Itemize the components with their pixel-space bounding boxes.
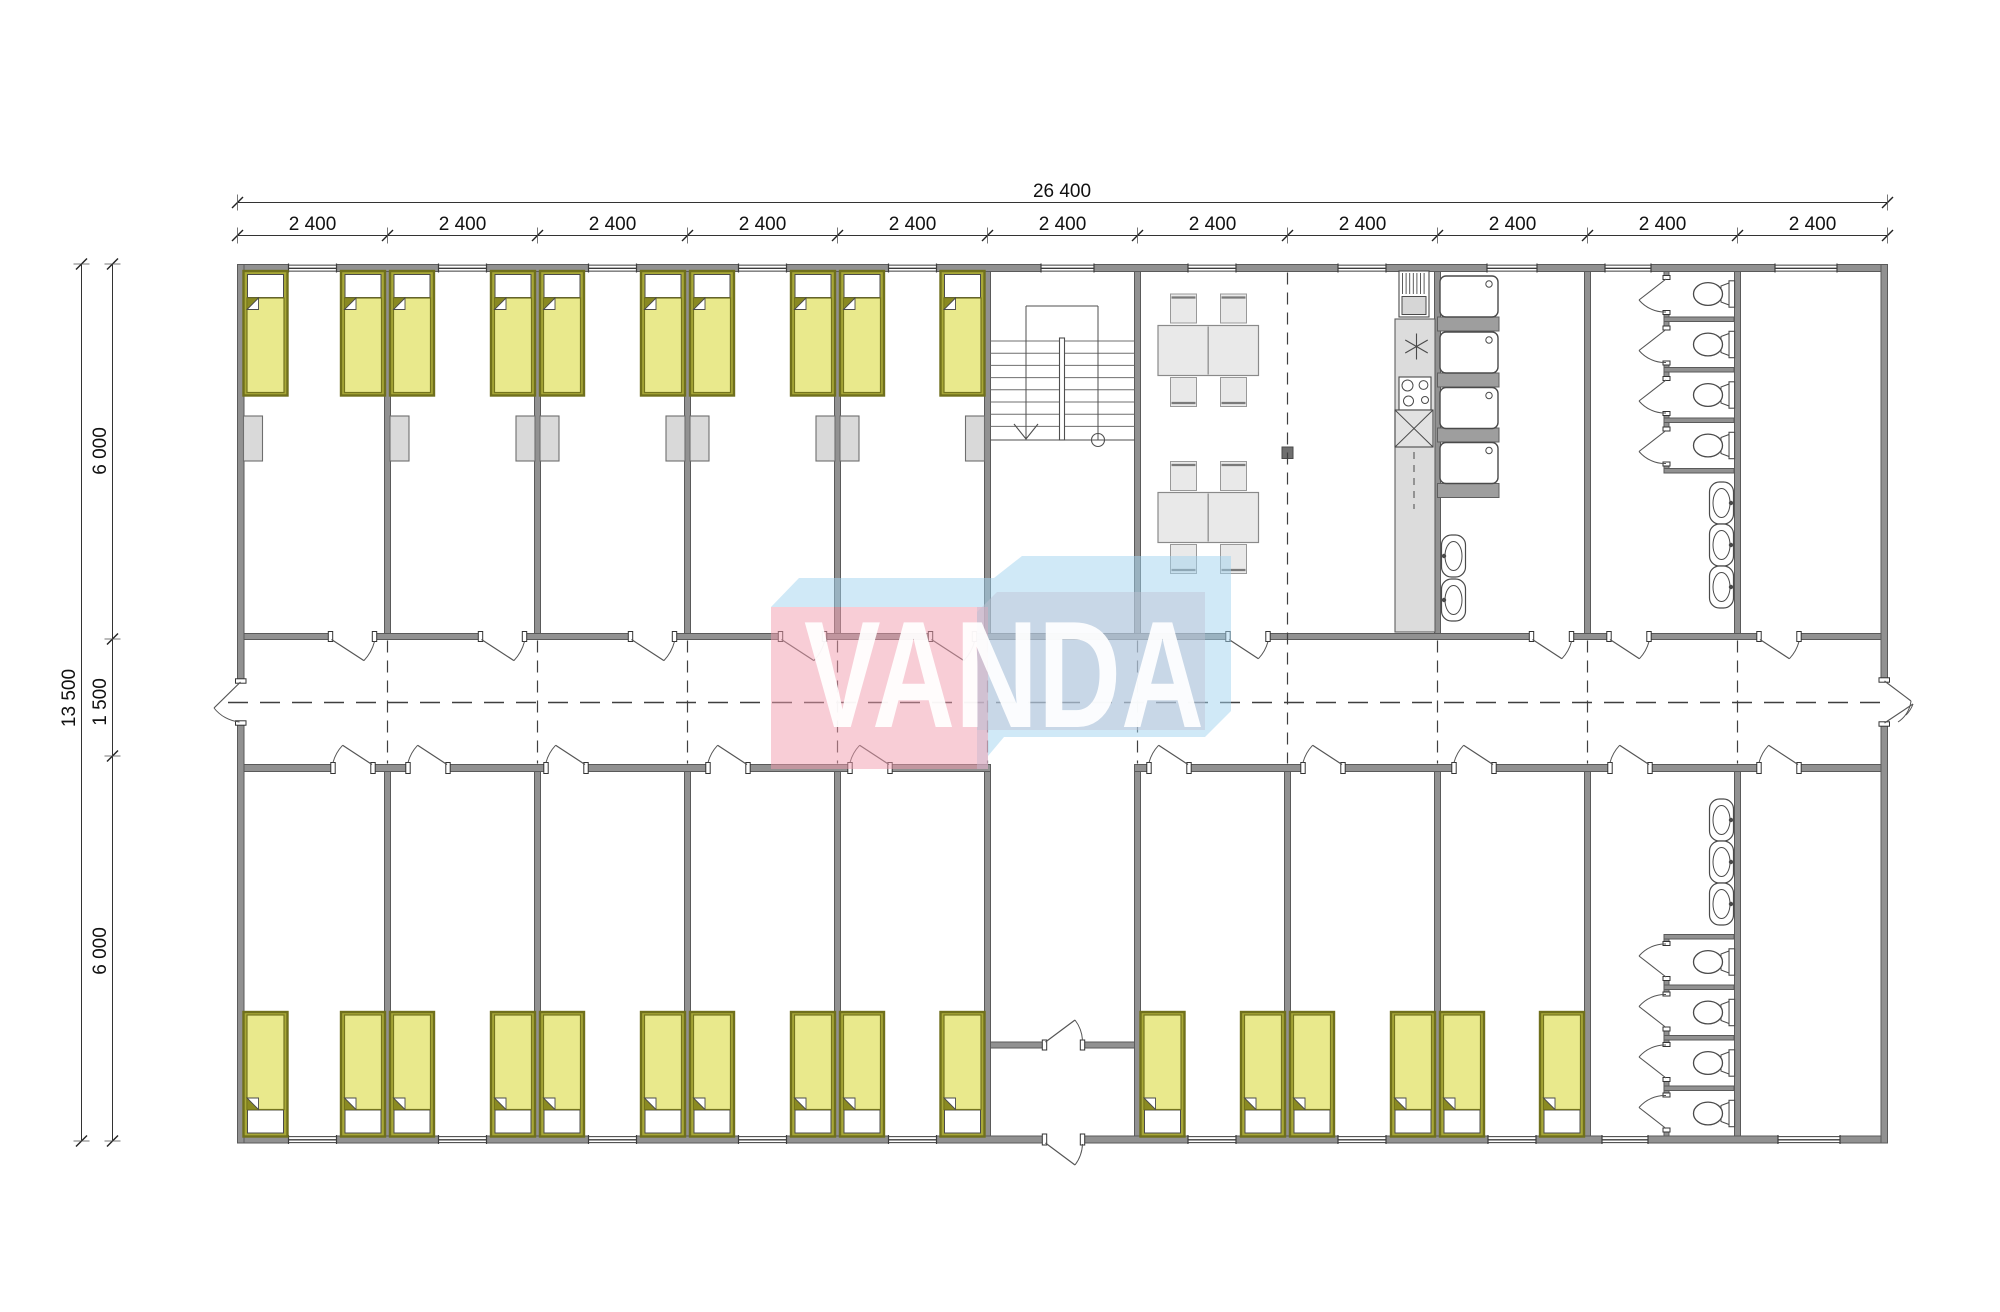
svg-text:2 400: 2 400 (1489, 214, 1537, 235)
svg-text:2 400: 2 400 (289, 214, 337, 235)
svg-text:2 400: 2 400 (1189, 214, 1237, 235)
svg-text:2 400: 2 400 (889, 214, 937, 235)
svg-text:2 400: 2 400 (439, 214, 487, 235)
svg-text:2 400: 2 400 (1639, 214, 1687, 235)
svg-text:2 400: 2 400 (739, 214, 787, 235)
svg-text:2 400: 2 400 (1339, 214, 1387, 235)
svg-text:1 500: 1 500 (90, 678, 111, 726)
svg-text:6 000: 6 000 (90, 427, 111, 475)
svg-text:13 500: 13 500 (59, 669, 80, 727)
svg-text:2 400: 2 400 (589, 214, 637, 235)
svg-text:2 400: 2 400 (1789, 214, 1837, 235)
svg-text:VANDA: VANDA (804, 590, 1204, 760)
svg-text:6 000: 6 000 (90, 927, 111, 975)
svg-text:26 400: 26 400 (1033, 181, 1091, 202)
svg-text:2 400: 2 400 (1039, 214, 1087, 235)
